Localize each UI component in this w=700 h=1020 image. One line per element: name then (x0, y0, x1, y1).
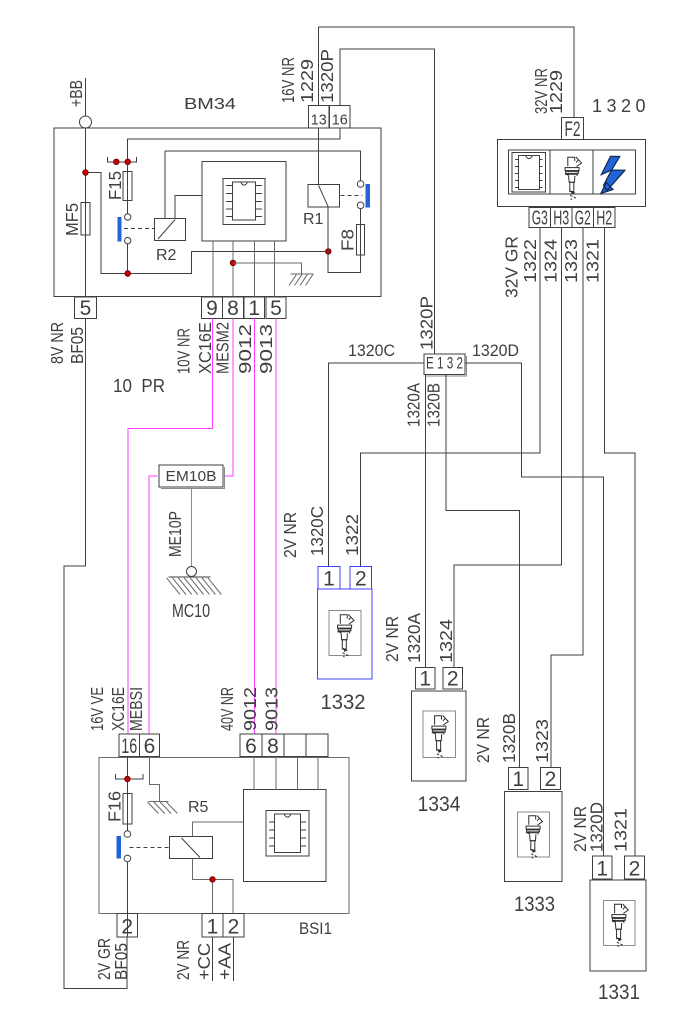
svg-text:8: 8 (227, 297, 239, 320)
svg-text:G2: G2 (575, 208, 591, 230)
svg-text:1: 1 (512, 768, 524, 791)
svg-text:9012: 9012 (240, 687, 260, 731)
svg-text:1323: 1323 (532, 719, 552, 763)
svg-text:MC10: MC10 (172, 601, 210, 621)
svg-text:1321: 1321 (611, 808, 631, 852)
svg-text:1: 1 (248, 297, 260, 320)
svg-text:1: 1 (596, 858, 608, 881)
svg-text:1333: 1333 (514, 893, 555, 916)
svg-text:1324: 1324 (436, 619, 456, 663)
svg-text:1320B: 1320B (499, 713, 519, 763)
svg-text:F16: F16 (105, 791, 125, 822)
svg-text:1320D: 1320D (587, 802, 607, 852)
svg-text:10 PR: 10 PR (113, 376, 165, 396)
svg-text:ME10P: ME10P (165, 511, 185, 557)
svg-text:9012: 9012 (235, 324, 255, 374)
svg-text:2: 2 (228, 916, 240, 939)
svg-text:1320A: 1320A (404, 613, 424, 663)
svg-text:1323: 1323 (561, 239, 581, 283)
svg-text:F8: F8 (338, 229, 358, 251)
svg-text:10V NR: 10V NR (174, 328, 194, 374)
svg-text:1320P: 1320P (417, 296, 437, 350)
svg-text:H2: H2 (596, 208, 612, 230)
svg-text:H3: H3 (553, 208, 569, 230)
svg-text:G3: G3 (532, 208, 548, 230)
svg-text:16V VE: 16V VE (87, 687, 107, 731)
svg-text:R2: R2 (156, 247, 177, 264)
svg-text:32V GR: 32V GR (502, 236, 522, 298)
svg-text:BF05: BF05 (67, 327, 87, 364)
svg-text:1322: 1322 (342, 514, 362, 556)
svg-text:+BB: +BB (66, 80, 86, 107)
svg-text:1229: 1229 (546, 70, 566, 114)
svg-text:1320B: 1320B (424, 383, 444, 427)
svg-text:2V NR: 2V NR (382, 616, 402, 662)
svg-text:XC16E: XC16E (108, 687, 128, 731)
svg-text:1332: 1332 (321, 691, 366, 714)
svg-text:6: 6 (144, 735, 156, 758)
svg-text:F2: F2 (565, 118, 581, 141)
svg-text:1321: 1321 (583, 239, 603, 283)
svg-text:1320C: 1320C (307, 506, 327, 556)
svg-text:1322: 1322 (520, 239, 540, 283)
svg-text:BSI1: BSI1 (299, 919, 332, 938)
svg-text:2: 2 (447, 667, 459, 690)
svg-text:E 1 3 2: E 1 3 2 (426, 355, 463, 373)
svg-text:8V NR: 8V NR (47, 322, 67, 364)
svg-text:1: 1 (207, 916, 219, 939)
svg-text:R1: R1 (303, 211, 324, 228)
svg-text:1320P: 1320P (317, 49, 337, 103)
svg-text:R5: R5 (188, 799, 209, 816)
svg-text:MESM2: MESM2 (213, 322, 233, 374)
svg-text:13: 13 (311, 112, 327, 129)
svg-text:16: 16 (332, 112, 348, 129)
svg-text:BF05: BF05 (111, 943, 131, 980)
svg-text:1: 1 (323, 568, 335, 591)
svg-text:2: 2 (545, 768, 557, 791)
svg-text:+CC: +CC (194, 943, 214, 980)
svg-text:16: 16 (121, 735, 137, 758)
svg-text:1331: 1331 (598, 981, 640, 1004)
svg-text:1320C: 1320C (348, 342, 395, 360)
svg-text:9: 9 (206, 297, 218, 320)
svg-text:2V NR: 2V NR (280, 512, 300, 558)
svg-text:1334: 1334 (418, 793, 461, 816)
svg-text:5: 5 (80, 297, 92, 320)
svg-text:16V NR: 16V NR (278, 57, 298, 103)
svg-text:1320A: 1320A (404, 383, 424, 427)
svg-text:MF5: MF5 (62, 203, 82, 236)
svg-text:9013: 9013 (256, 324, 276, 374)
svg-text:6: 6 (245, 735, 257, 758)
svg-text:1320D: 1320D (472, 342, 519, 360)
svg-text:2V NR: 2V NR (173, 940, 193, 980)
svg-text:2V NR: 2V NR (473, 717, 493, 763)
svg-text:1320: 1320 (592, 96, 650, 116)
svg-text:2: 2 (355, 568, 367, 591)
svg-text:MEBSI: MEBSI (126, 687, 146, 731)
svg-text:EM10B: EM10B (166, 468, 217, 485)
svg-text:5: 5 (270, 297, 282, 320)
svg-text:2: 2 (629, 858, 641, 881)
svg-text:1: 1 (419, 667, 431, 690)
svg-text:40V NR: 40V NR (217, 687, 237, 731)
svg-text:1229: 1229 (297, 59, 317, 103)
svg-text:2: 2 (121, 916, 133, 939)
svg-text:9013: 9013 (262, 687, 282, 731)
svg-text:+AA: +AA (215, 943, 235, 980)
svg-text:F15: F15 (105, 171, 125, 200)
svg-text:BM34: BM34 (184, 96, 236, 113)
svg-text:1324: 1324 (541, 239, 561, 283)
svg-text:8: 8 (267, 735, 279, 758)
